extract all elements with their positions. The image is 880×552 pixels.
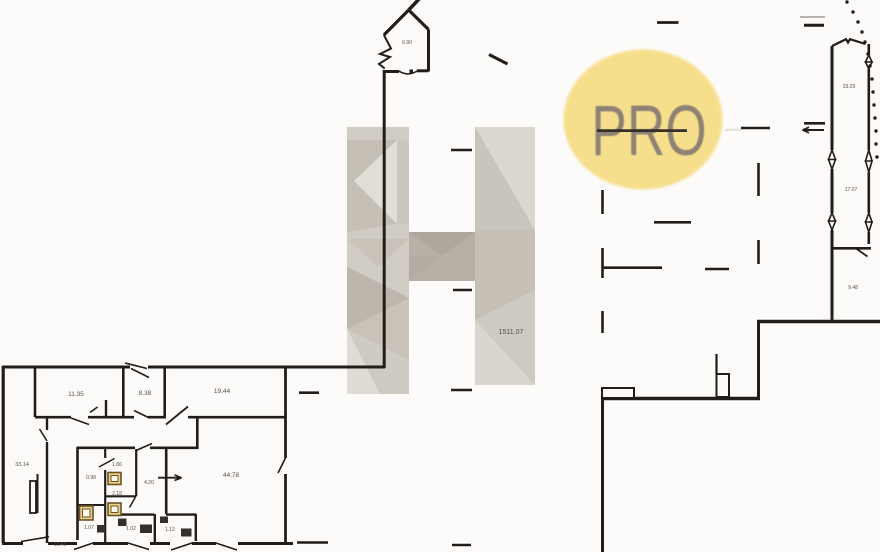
svg-text:9.48: 9.48 bbox=[848, 285, 858, 291]
svg-text:19.44: 19.44 bbox=[214, 388, 231, 395]
svg-text:44.78: 44.78 bbox=[223, 472, 240, 479]
svg-text:1.02: 1.02 bbox=[126, 526, 136, 532]
svg-text:6.90: 6.90 bbox=[402, 40, 412, 46]
svg-text:1.07: 1.07 bbox=[84, 525, 94, 531]
svg-text:1511.07: 1511.07 bbox=[499, 329, 524, 336]
svg-text:11.35: 11.35 bbox=[68, 391, 84, 398]
svg-text:33.29: 33.29 bbox=[843, 84, 856, 90]
svg-text:8.38: 8.38 bbox=[139, 390, 152, 397]
svg-text:17.07: 17.07 bbox=[845, 187, 858, 193]
svg-text:33.14: 33.14 bbox=[15, 462, 29, 468]
svg-text:0.98: 0.98 bbox=[86, 475, 96, 481]
svg-text:1.86: 1.86 bbox=[112, 462, 122, 468]
svg-text:1.12: 1.12 bbox=[165, 527, 175, 533]
svg-text:10.41: 10.41 bbox=[54, 542, 67, 548]
svg-text:2.18: 2.18 bbox=[112, 491, 122, 497]
svg-text:4.20: 4.20 bbox=[144, 480, 154, 486]
